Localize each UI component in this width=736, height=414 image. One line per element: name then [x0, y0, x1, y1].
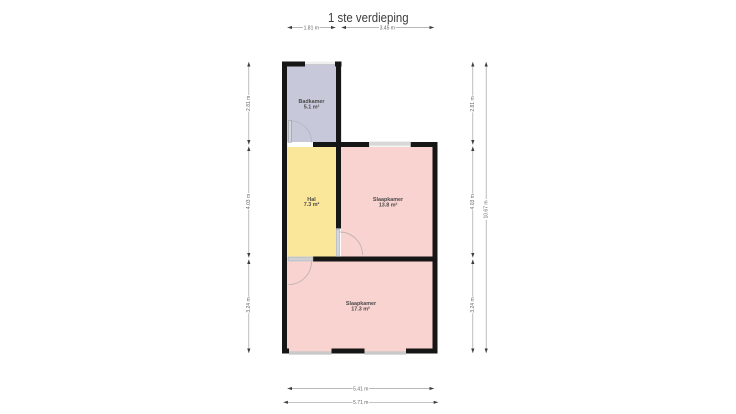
svg-text:5.1 m²: 5.1 m²	[304, 105, 320, 111]
svg-text:4.03 m: 4.03 m	[470, 194, 476, 209]
svg-text:2.81 m: 2.81 m	[470, 96, 476, 111]
svg-text:5.71 m: 5.71 m	[353, 400, 368, 406]
svg-text:17.3 m²: 17.3 m²	[351, 307, 370, 313]
svg-text:10.67 m: 10.67 m	[484, 200, 490, 218]
svg-text:1 ste verdieping: 1 ste verdieping	[328, 10, 409, 25]
svg-text:3.24 m: 3.24 m	[470, 297, 476, 312]
svg-text:1.81 m: 1.81 m	[304, 25, 319, 31]
svg-text:7.3 m²: 7.3 m²	[304, 202, 320, 208]
svg-text:13.8 m²: 13.8 m²	[379, 202, 398, 208]
svg-text:3.45 m: 3.45 m	[380, 25, 395, 31]
svg-text:4.03 m: 4.03 m	[246, 194, 252, 209]
svg-text:3.24 m: 3.24 m	[246, 297, 252, 312]
svg-text:2.81 m: 2.81 m	[246, 96, 252, 111]
svg-text:5.41 m: 5.41 m	[353, 386, 368, 392]
